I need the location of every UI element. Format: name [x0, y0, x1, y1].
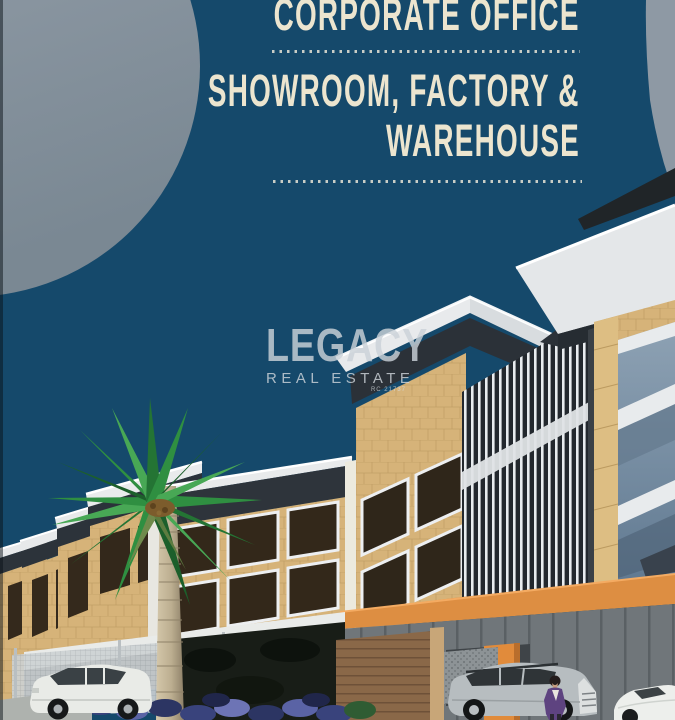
watermark-subtitle: REAL ESTATE — [266, 371, 416, 386]
dotted-divider-bottom — [273, 180, 582, 183]
left-edge-line — [0, 0, 3, 720]
legacy-watermark: LEGACY REAL ESTATE RC 21737 — [266, 322, 416, 393]
watermark-brand: LEGACY — [266, 322, 389, 368]
suv-silver — [448, 663, 597, 720]
headline-showroom-factory: SHOWROOM, FACTORY & — [208, 68, 580, 113]
dotted-divider-top — [272, 50, 580, 53]
real-estate-poster: CORPORATE OFFICE SHOWROOM, FACTORY & WAR… — [0, 0, 675, 720]
headline-corporate-office: CORPORATE OFFICE — [274, 0, 580, 37]
headline-warehouse: WAREHOUSE — [386, 118, 580, 163]
watermark-registration: RC 21737 — [266, 387, 406, 393]
